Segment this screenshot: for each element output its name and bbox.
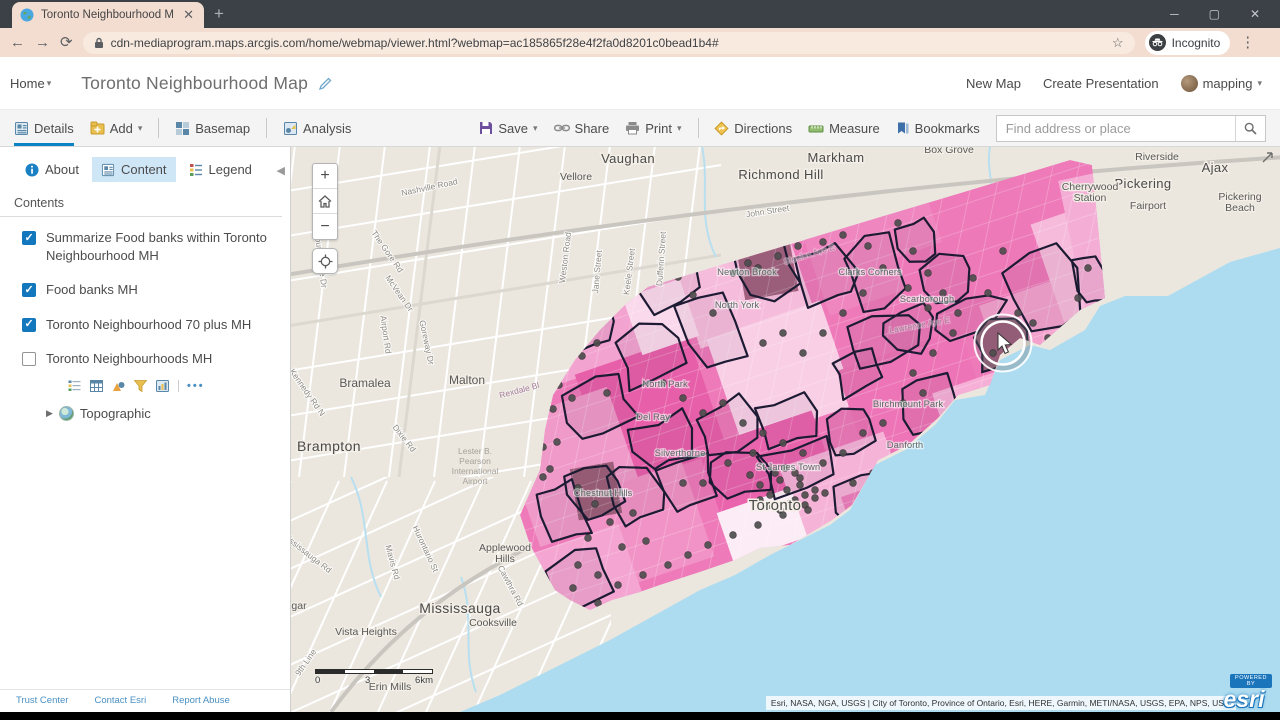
food-bank-point: [920, 390, 927, 397]
food-bank-point: [725, 460, 732, 467]
food-bank-point: [860, 430, 867, 437]
add-icon: [90, 121, 105, 135]
tab-close-icon[interactable]: ✕: [181, 7, 196, 23]
new-tab-button[interactable]: +: [214, 4, 224, 24]
find-my-location-button[interactable]: [312, 248, 338, 274]
food-bank-point: [822, 490, 829, 497]
food-bank-point: [925, 305, 932, 312]
food-bank-point: [930, 350, 937, 357]
map-label: Scarborough: [900, 294, 954, 305]
food-bank-point: [820, 330, 827, 337]
share-link-icon: [554, 123, 570, 133]
legend-icon: [189, 163, 203, 177]
share-button[interactable]: Share: [554, 110, 610, 146]
incognito-icon: [1149, 34, 1166, 51]
food-bank-point: [797, 482, 804, 489]
food-bank-point: [760, 340, 767, 347]
layer-label: Summarize Food banks within Toronto Neig…: [46, 229, 282, 265]
home-extent-button[interactable]: [313, 189, 337, 214]
food-bank-point: [950, 330, 957, 337]
map-label: Mississauga: [419, 600, 500, 616]
food-bank-point: [1085, 265, 1092, 272]
tab-about[interactable]: About: [16, 157, 88, 182]
layer-checkbox[interactable]: [22, 352, 36, 366]
food-bank-point: [840, 232, 847, 239]
food-bank-point: [700, 410, 707, 417]
food-bank-point: [665, 562, 672, 569]
map-label: Silverthorne: [655, 448, 706, 459]
food-bank-point: [747, 472, 754, 479]
food-bank-point: [1015, 310, 1022, 317]
save-button[interactable]: Save▾: [479, 110, 537, 146]
topographic-globe-icon: [59, 406, 74, 421]
new-map-button[interactable]: New Map: [966, 76, 1021, 91]
bookmarks-button[interactable]: Bookmarks: [896, 110, 980, 146]
user-menu[interactable]: mapping ▾: [1181, 75, 1262, 92]
map-label: International: [452, 466, 499, 476]
map-label: North York: [715, 300, 760, 311]
browser-navbar: ← → ⟳ cdn-mediaprogram.maps.arcgis.com/h…: [0, 28, 1280, 57]
food-bank-point: [730, 532, 737, 539]
food-bank-point: [840, 450, 847, 457]
map-label: Danforth: [887, 440, 923, 451]
food-bank-point: [850, 480, 857, 487]
map-toolbar: Details Add▾ Basemap Analysis: [0, 110, 1280, 147]
layer-label: Toronto Neighbourhoods MH: [46, 350, 212, 368]
map-zoom-controls: + −: [312, 163, 338, 240]
map-label: Markham: [808, 150, 865, 165]
page-title: Toronto Neighbourhood Map: [81, 73, 308, 94]
food-bank-point: [594, 340, 601, 347]
browser-tab-bar: Toronto Neighbourhood Map ✕ + ─ ▢ ✕: [0, 0, 1280, 28]
map-label: Clarks Corners: [838, 267, 902, 278]
letterbox-bar: [0, 712, 1280, 720]
map-label: North Park: [642, 379, 688, 390]
tab-title: Toronto Neighbourhood Map: [41, 9, 174, 21]
map-label: Pearson: [459, 456, 491, 466]
food-bank-point: [540, 474, 547, 481]
more-options-button[interactable]: •••: [178, 380, 205, 392]
map-label: Vellore: [560, 171, 592, 183]
food-bank-point: [755, 522, 762, 529]
contact-esri-link[interactable]: Contact Esri: [94, 695, 146, 706]
food-bank-point: [705, 542, 712, 549]
basemap-icon: [175, 121, 190, 136]
map-graphics: VaughanRichmond HillMarkhamAjaxPickering…: [291, 147, 1280, 712]
layer-label: Food banks MH: [46, 281, 138, 299]
food-bank-point: [910, 370, 917, 377]
food-bank-point: [800, 450, 807, 457]
food-bank-point: [780, 330, 787, 337]
app-header: Home▾ Toronto Neighbourhood Map New Map …: [0, 57, 1280, 110]
food-bank-point: [955, 310, 962, 317]
tab-content[interactable]: Content: [92, 157, 176, 182]
find-address-search: [996, 115, 1266, 142]
food-bank-point: [615, 582, 622, 589]
print-button[interactable]: Print▾: [625, 110, 681, 146]
locate-icon: [318, 254, 333, 269]
bookmark-star-icon[interactable]: ☆: [1112, 35, 1124, 51]
food-bank-point: [595, 572, 602, 579]
food-bank-point: [800, 350, 807, 357]
contents-heading: Contents: [0, 188, 282, 217]
edit-title-pencil-icon[interactable]: [318, 76, 333, 91]
map-label: Brampton: [297, 438, 361, 454]
food-bank-point: [1030, 320, 1037, 327]
food-bank-point: [985, 290, 992, 297]
forward-icon[interactable]: →: [35, 35, 50, 50]
layer-item[interactable]: Toronto Neighbourhood 70 plus MH: [22, 316, 282, 334]
search-icon: [1244, 122, 1257, 135]
food-bank-point: [604, 390, 611, 397]
food-bank-point: [820, 460, 827, 467]
food-bank-point: [880, 420, 887, 427]
food-bank-point: [905, 285, 912, 292]
food-bank-point: [1075, 295, 1082, 302]
map-label: Birchmount Park: [873, 399, 943, 410]
food-bank-point: [860, 290, 867, 297]
chevron-down-icon: ▾: [138, 123, 143, 134]
basemap-layer-item[interactable]: ▶ Topographic: [46, 406, 282, 421]
directions-button[interactable]: Directions: [714, 110, 792, 146]
food-bank-point: [745, 260, 752, 267]
map-label: Pickering: [1114, 176, 1171, 191]
food-bank-point: [690, 292, 697, 299]
map-label: Station: [1074, 192, 1107, 204]
show-table-icon[interactable]: [90, 380, 103, 392]
map-label: St James Town: [756, 462, 820, 473]
trust-center-link[interactable]: Trust Center: [16, 695, 68, 706]
url-bar[interactable]: cdn-mediaprogram.maps.arcgis.com/home/we…: [83, 32, 1135, 54]
url-text: cdn-mediaprogram.maps.arcgis.com/home/we…: [111, 36, 1105, 50]
map-label: Malton: [449, 373, 485, 387]
food-bank-point: [797, 475, 804, 482]
scale-bar: 036km: [315, 669, 433, 686]
show-legend-icon[interactable]: [68, 380, 81, 392]
food-bank-point: [643, 538, 650, 545]
chevron-down-icon: ▾: [533, 123, 538, 134]
food-bank-point: [640, 572, 647, 579]
basemap-layer-label: Topographic: [80, 406, 151, 421]
food-bank-point: [685, 552, 692, 559]
collapse-panel-arrow[interactable]: ◀: [277, 164, 285, 177]
food-bank-point: [895, 220, 902, 227]
food-bank-point: [740, 420, 747, 427]
food-bank-point: [805, 507, 812, 514]
open-arrow-icon[interactable]: [1261, 150, 1275, 164]
favicon-globe-icon: [20, 8, 34, 22]
food-bank-point: [607, 519, 614, 526]
food-bank-point: [760, 430, 767, 437]
save-icon: [479, 121, 493, 135]
map-label: Airport: [462, 476, 488, 486]
food-bank-point: [910, 248, 917, 255]
food-bank-point: [750, 450, 757, 457]
zoom-in-button[interactable]: +: [313, 164, 337, 189]
map-attribution: Esri, NASA, NGA, USGS | City of Toronto,…: [766, 696, 1236, 710]
map-label: Newton Brook: [717, 267, 777, 278]
chevron-down-icon: ▾: [1257, 78, 1262, 89]
create-presentation-button[interactable]: Create Presentation: [1043, 76, 1159, 91]
food-bank-point: [775, 253, 782, 260]
food-bank-point: [575, 562, 582, 569]
food-bank-point: [550, 406, 557, 413]
layer-checkbox[interactable]: [22, 318, 36, 332]
layer-item[interactable]: Food banks MH: [22, 281, 282, 299]
food-bank-point: [812, 487, 819, 494]
food-bank-point: [840, 310, 847, 317]
food-bank-point: [1000, 248, 1007, 255]
report-abuse-link[interactable]: Report Abuse: [172, 695, 230, 706]
map-label: Vista Heights: [335, 626, 397, 638]
food-bank-point: [547, 466, 554, 473]
food-bank-point: [970, 275, 977, 282]
window-minimize-icon[interactable]: ─: [1170, 7, 1179, 21]
food-bank-point: [680, 395, 687, 402]
food-bank-point: [554, 439, 561, 446]
lock-icon: [94, 37, 104, 49]
food-bank-point: [720, 400, 727, 407]
map-label: Cooksville: [469, 617, 517, 629]
food-bank-point: [990, 350, 997, 357]
directions-icon: [714, 121, 729, 136]
map-label: Vaughan: [601, 151, 655, 166]
layer-label: Toronto Neighbourhood 70 plus MH: [46, 316, 251, 334]
reload-icon[interactable]: ⟳: [60, 35, 73, 50]
analysis-icon: [283, 121, 298, 136]
food-bank-point: [802, 492, 809, 499]
back-icon[interactable]: ←: [10, 35, 25, 50]
browser-tab[interactable]: Toronto Neighbourhood Map ✕: [12, 2, 204, 28]
search-button[interactable]: [1235, 116, 1265, 141]
food-bank-point: [592, 501, 599, 508]
layer-item[interactable]: Toronto Neighbourhoods MH: [22, 350, 282, 368]
esri-logo: POWERED BY esri: [1216, 672, 1272, 710]
window-close-icon[interactable]: ✕: [1250, 7, 1260, 21]
food-bank-point: [619, 544, 626, 551]
details-button[interactable]: Details: [14, 110, 74, 146]
food-bank-point: [780, 440, 787, 447]
map-label: Del Ray: [636, 412, 670, 423]
home-icon: [318, 195, 332, 208]
info-icon: [25, 163, 39, 177]
food-bank-point: [795, 243, 802, 250]
food-bank-point: [569, 395, 576, 402]
print-icon: [625, 121, 640, 135]
map-label: Chestnut Hills: [574, 488, 633, 499]
content-icon: [101, 163, 115, 177]
change-style-icon[interactable]: [112, 380, 125, 392]
map-label: Beach: [1225, 202, 1255, 214]
map-label: gar: [291, 600, 307, 612]
map-label: Box Grove: [924, 147, 974, 156]
perform-analysis-icon[interactable]: [156, 380, 169, 392]
food-bank-point: [925, 270, 932, 277]
bookmarks-icon: [896, 121, 910, 135]
details-icon: [14, 121, 29, 136]
food-bank-point: [570, 585, 577, 592]
map-label: Ajax: [1202, 160, 1229, 175]
measure-icon: [808, 122, 824, 135]
layer-checkbox[interactable]: [22, 283, 36, 297]
browser-menu-icon[interactable]: ⋮: [1240, 35, 1255, 50]
map-label: Fairport: [1130, 200, 1166, 212]
map-label: Riverside: [1135, 151, 1179, 163]
food-bank-point: [585, 535, 592, 542]
food-bank-point: [700, 480, 707, 487]
home-menu[interactable]: Home▾: [10, 76, 51, 91]
food-bank-point: [680, 480, 687, 487]
food-bank-point: [865, 243, 872, 250]
map-label: Toronto: [749, 497, 802, 514]
incognito-label: Incognito: [1172, 36, 1221, 50]
measure-button[interactable]: Measure: [808, 110, 880, 146]
map-label: Lester B.: [458, 446, 492, 456]
filter-icon[interactable]: [134, 380, 147, 392]
food-bank-point: [777, 477, 784, 484]
food-bank-point: [630, 510, 637, 517]
analysis-button[interactable]: Analysis: [283, 110, 351, 146]
food-bank-point: [757, 482, 764, 489]
details-panel: About Content: [0, 147, 291, 712]
layer-item[interactable]: Summarize Food banks within Toronto Neig…: [22, 229, 282, 265]
panel-footer: Trust Center Contact Esri Report Abuse: [0, 689, 290, 712]
expand-arrow-icon[interactable]: ▶: [46, 408, 53, 419]
food-bank-point: [812, 495, 819, 502]
search-input[interactable]: [997, 116, 1235, 141]
browser-window: Toronto Neighbourhood Map ✕ + ─ ▢ ✕ ← → …: [0, 0, 1280, 720]
add-button[interactable]: Add▾: [90, 110, 143, 146]
incognito-badge: Incognito: [1145, 31, 1231, 55]
chevron-down-icon: ▾: [677, 123, 682, 134]
window-maximize-icon[interactable]: ▢: [1209, 7, 1220, 21]
basemap-button[interactable]: Basemap: [175, 110, 250, 146]
map-canvas[interactable]: VaughanRichmond HillMarkhamAjaxPickering…: [291, 147, 1280, 712]
food-bank-point: [784, 487, 791, 494]
tab-legend[interactable]: Legend: [180, 157, 261, 182]
zoom-out-button[interactable]: −: [313, 214, 337, 239]
map-label: Richmond Hill: [738, 167, 823, 182]
chevron-down-icon: ▾: [47, 78, 52, 89]
layer-checkbox[interactable]: [22, 231, 36, 245]
avatar: [1181, 75, 1198, 92]
map-label: Bramalea: [339, 376, 391, 390]
